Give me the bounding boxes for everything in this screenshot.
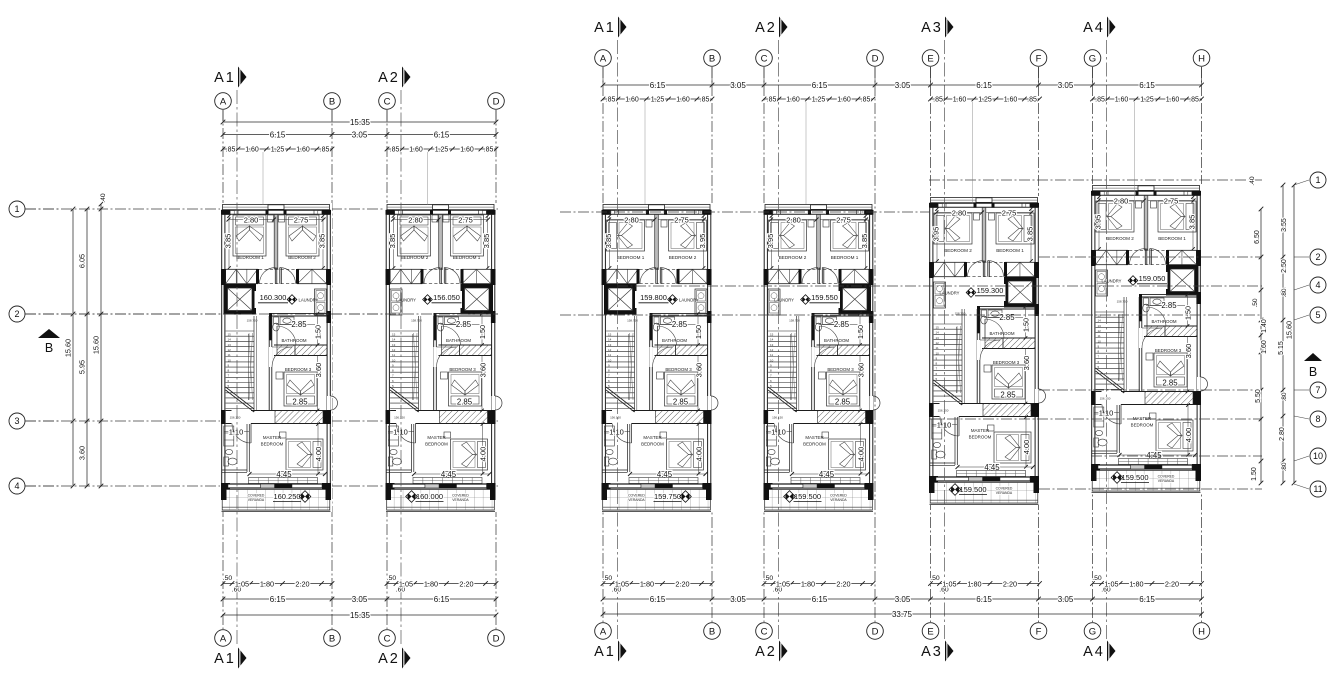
svg-text:BEDROOM: BEDROOM — [641, 442, 664, 447]
svg-text:MASTER: MASTER — [263, 435, 281, 440]
svg-text:4.00: 4.00 — [1184, 428, 1193, 443]
svg-text:4.00: 4.00 — [314, 447, 323, 462]
svg-text:10: 10 — [770, 358, 774, 362]
svg-text:2.20: 2.20 — [675, 579, 689, 588]
svg-text:.40: .40 — [1249, 176, 1256, 186]
svg-text:1.80: 1.80 — [640, 579, 654, 588]
svg-text:BEDROOM 3: BEDROOM 3 — [449, 367, 476, 372]
svg-text:4.00: 4.00 — [695, 447, 704, 462]
svg-text:6.15: 6.15 — [1139, 81, 1155, 90]
svg-text:1.60: 1.60 — [1166, 97, 1180, 104]
svg-text:C: C — [384, 633, 391, 644]
svg-text:A: A — [600, 53, 607, 64]
svg-text:3.05: 3.05 — [730, 81, 746, 90]
svg-text:159.500: 159.500 — [959, 485, 986, 494]
svg-text:3.95: 3.95 — [698, 234, 707, 249]
svg-text:.50: .50 — [387, 575, 397, 582]
svg-text:4.00: 4.00 — [1022, 440, 1031, 455]
svg-text:1.60: 1.60 — [786, 97, 800, 104]
svg-text:3.85: 3.85 — [388, 234, 397, 249]
svg-text:1.10: 1.10 — [393, 427, 408, 436]
svg-text:11: 11 — [228, 353, 231, 357]
svg-text:1.60: 1.60 — [625, 97, 639, 104]
svg-text:10: 10 — [608, 358, 612, 362]
svg-text:2.80: 2.80 — [624, 215, 639, 224]
svg-text:2.85: 2.85 — [1161, 301, 1177, 310]
svg-text:158.750: 158.750 — [411, 319, 422, 323]
svg-text:.85: .85 — [390, 147, 400, 154]
svg-text:2.75: 2.75 — [836, 215, 851, 224]
svg-text:1.25: 1.25 — [651, 97, 665, 104]
svg-text:1.80: 1.80 — [967, 579, 981, 588]
svg-text:E: E — [927, 53, 933, 64]
svg-text:1.50: 1.50 — [1184, 306, 1193, 320]
svg-text:BEDROOM 1: BEDROOM 1 — [831, 255, 859, 260]
svg-text:6.15: 6.15 — [812, 81, 828, 90]
svg-text:6.15: 6.15 — [650, 81, 666, 90]
svg-text:.50: .50 — [603, 575, 613, 582]
svg-text:7: 7 — [1315, 385, 1320, 395]
svg-text:A2: A2 — [378, 651, 400, 667]
svg-text:3: 3 — [14, 416, 19, 426]
svg-text:15: 15 — [1098, 314, 1102, 318]
svg-text:11: 11 — [392, 353, 395, 357]
svg-text:BATHROOM: BATHROOM — [446, 338, 471, 343]
svg-text:14: 14 — [936, 331, 940, 335]
svg-text:B: B — [45, 341, 53, 355]
svg-text:2.85: 2.85 — [1000, 391, 1016, 400]
svg-text:12: 12 — [936, 341, 940, 345]
svg-text:2.80: 2.80 — [244, 215, 259, 224]
svg-text:1.60: 1.60 — [409, 147, 423, 154]
svg-text:2.85: 2.85 — [835, 398, 851, 407]
svg-text:BEDROOM 1: BEDROOM 1 — [1158, 236, 1186, 241]
svg-text:.85: .85 — [1027, 97, 1037, 104]
svg-text:.50: .50 — [1092, 575, 1102, 582]
svg-text:3.60: 3.60 — [1022, 356, 1031, 371]
svg-text:6.50: 6.50 — [1254, 230, 1261, 244]
svg-text:14: 14 — [770, 338, 774, 342]
svg-text:14: 14 — [608, 338, 612, 342]
svg-text:.50: .50 — [930, 575, 940, 582]
svg-text:B: B — [1309, 365, 1317, 379]
svg-text:1.25: 1.25 — [812, 97, 826, 104]
svg-text:156.150: 156.150 — [394, 416, 405, 420]
svg-text:BEDROOM 1: BEDROOM 1 — [236, 255, 264, 260]
svg-text:BEDROOM 2: BEDROOM 2 — [669, 255, 697, 260]
svg-text:BATHROOM: BATHROOM — [989, 331, 1014, 336]
svg-text:156.050: 156.050 — [433, 293, 460, 302]
svg-text:158.750: 158.750 — [1117, 300, 1128, 304]
svg-text:2.85: 2.85 — [457, 398, 473, 407]
svg-text:.85: .85 — [1095, 97, 1105, 104]
svg-text:12: 12 — [608, 348, 612, 352]
svg-text:BEDROOM 2: BEDROOM 2 — [779, 255, 807, 260]
svg-text:2.80: 2.80 — [1279, 427, 1286, 441]
svg-text:D: D — [493, 96, 500, 107]
svg-text:1.10: 1.10 — [937, 420, 952, 429]
svg-text:11: 11 — [936, 346, 939, 350]
svg-text:.80: .80 — [1281, 392, 1288, 401]
svg-text:2.75: 2.75 — [458, 215, 473, 224]
svg-text:C: C — [384, 96, 391, 107]
svg-text:BEDROOM: BEDROOM — [1131, 423, 1154, 428]
svg-text:BEDROOM 2: BEDROOM 2 — [944, 248, 972, 253]
svg-text:160.000: 160.000 — [416, 492, 443, 501]
svg-text:.40: .40 — [100, 193, 107, 203]
svg-text:D: D — [872, 626, 879, 637]
svg-text:3.05: 3.05 — [895, 81, 911, 90]
svg-text:2.80: 2.80 — [408, 215, 423, 224]
svg-text:159.800: 159.800 — [640, 293, 667, 302]
svg-text:12: 12 — [1098, 329, 1102, 333]
svg-text:3.05: 3.05 — [352, 130, 368, 139]
svg-text:6.05: 6.05 — [78, 254, 87, 268]
svg-text:1.60: 1.60 — [296, 147, 310, 154]
svg-text:A2: A2 — [378, 70, 400, 86]
svg-text:A: A — [220, 633, 227, 644]
svg-text:BATHROOM: BATHROOM — [824, 338, 849, 343]
svg-text:.85: .85 — [484, 147, 494, 154]
svg-text:2.85: 2.85 — [672, 320, 688, 329]
svg-text:1.50: 1.50 — [1022, 318, 1031, 332]
svg-text:15.35: 15.35 — [350, 118, 371, 127]
svg-text:156.150: 156.150 — [1100, 397, 1111, 401]
svg-text:A4: A4 — [1083, 644, 1105, 660]
svg-text:2.80: 2.80 — [952, 208, 967, 217]
svg-text:2: 2 — [14, 309, 19, 319]
svg-text:COVERED: COVERED — [628, 494, 645, 498]
svg-text:MASTER: MASTER — [643, 435, 661, 440]
svg-text:4.00: 4.00 — [857, 447, 866, 462]
svg-text:6.15: 6.15 — [976, 81, 992, 90]
svg-text:BATHROOM: BATHROOM — [1151, 319, 1176, 324]
svg-text:3.85: 3.85 — [860, 234, 869, 249]
svg-text:2.75: 2.75 — [1002, 208, 1017, 217]
svg-text:15.60: 15.60 — [1285, 321, 1294, 339]
svg-text:BEDROOM: BEDROOM — [425, 442, 448, 447]
svg-text:.85: .85 — [226, 147, 236, 154]
svg-text:2.85: 2.85 — [673, 398, 689, 407]
svg-text:A3: A3 — [921, 20, 943, 36]
svg-text:.80: .80 — [1281, 288, 1288, 297]
svg-text:13: 13 — [608, 343, 612, 347]
svg-text:G: G — [1089, 53, 1096, 64]
svg-text:3.05: 3.05 — [352, 595, 368, 604]
svg-text:1.05: 1.05 — [235, 579, 249, 588]
svg-text:1.50: 1.50 — [314, 325, 323, 339]
svg-text:A2: A2 — [755, 644, 777, 660]
svg-text:4: 4 — [1315, 280, 1320, 290]
svg-text:3.60: 3.60 — [1184, 344, 1193, 359]
svg-text:.85: .85 — [933, 97, 943, 104]
svg-text:F: F — [1036, 626, 1042, 637]
svg-text:12: 12 — [770, 348, 774, 352]
svg-text:1.50: 1.50 — [1251, 467, 1258, 481]
svg-text:33.75: 33.75 — [892, 610, 913, 619]
svg-text:BEDROOM 3: BEDROOM 3 — [665, 367, 692, 372]
svg-text:159.500: 159.500 — [794, 492, 821, 501]
svg-text:1: 1 — [1315, 175, 1320, 185]
svg-text:A1: A1 — [594, 644, 616, 660]
svg-text:5.50: 5.50 — [1255, 389, 1262, 403]
svg-text:13: 13 — [936, 336, 940, 340]
svg-text:COVERED: COVERED — [248, 494, 265, 498]
svg-text:2.85: 2.85 — [834, 320, 850, 329]
svg-text:3.60: 3.60 — [479, 363, 488, 378]
svg-text:.85: .85 — [606, 97, 616, 104]
svg-text:156.150: 156.150 — [610, 416, 621, 420]
svg-text:1.05: 1.05 — [615, 579, 629, 588]
svg-text:3.60: 3.60 — [314, 363, 323, 378]
svg-text:G: G — [1089, 626, 1096, 637]
svg-text:6.15: 6.15 — [812, 595, 828, 604]
svg-text:2.20: 2.20 — [1165, 579, 1179, 588]
svg-text:BEDROOM 2: BEDROOM 2 — [288, 255, 316, 260]
svg-text:BATHROOM: BATHROOM — [662, 338, 687, 343]
svg-text:3.95: 3.95 — [1094, 215, 1103, 230]
svg-text:6.15: 6.15 — [1139, 595, 1155, 604]
svg-text:2.20: 2.20 — [1003, 579, 1017, 588]
svg-text:LAUNDRY: LAUNDRY — [299, 298, 319, 303]
svg-text:8: 8 — [1315, 414, 1320, 424]
svg-text:.85: .85 — [320, 147, 330, 154]
svg-text:15: 15 — [392, 333, 396, 337]
svg-text:159.550: 159.550 — [811, 293, 838, 302]
svg-text:4: 4 — [14, 481, 19, 491]
svg-text:1.60: 1.60 — [460, 147, 474, 154]
svg-text:3.85: 3.85 — [318, 234, 327, 249]
svg-text:LAUNDRY: LAUNDRY — [679, 298, 699, 303]
svg-text:2: 2 — [1315, 252, 1320, 262]
svg-text:A1: A1 — [214, 70, 236, 86]
svg-text:3.85: 3.85 — [482, 234, 491, 249]
svg-text:3.85: 3.85 — [1026, 227, 1035, 242]
svg-text:A: A — [220, 96, 227, 107]
svg-text:COVERED: COVERED — [452, 494, 469, 498]
svg-text:5: 5 — [1315, 310, 1320, 320]
svg-text:3.60: 3.60 — [78, 446, 87, 460]
svg-text:1.05: 1.05 — [776, 579, 790, 588]
svg-text:H: H — [1198, 626, 1205, 637]
svg-text:1.10: 1.10 — [229, 427, 244, 436]
svg-text:BEDROOM 1: BEDROOM 1 — [996, 248, 1024, 253]
svg-text:BEDROOM: BEDROOM — [803, 442, 826, 447]
svg-text:.85: .85 — [767, 97, 777, 104]
svg-text:1.10: 1.10 — [609, 427, 624, 436]
svg-text:COVERED: COVERED — [830, 494, 847, 498]
svg-text:2.50: 2.50 — [1281, 259, 1288, 273]
svg-text:15: 15 — [936, 326, 940, 330]
svg-text:BEDROOM 3: BEDROOM 3 — [993, 360, 1020, 365]
svg-text:LAUNDRY: LAUNDRY — [940, 291, 960, 296]
svg-text:3.60: 3.60 — [857, 363, 866, 378]
svg-text:10: 10 — [1313, 451, 1323, 461]
svg-text:1.60: 1.60 — [245, 147, 259, 154]
svg-text:BEDROOM 3: BEDROOM 3 — [1155, 348, 1182, 353]
svg-text:.50: .50 — [223, 575, 233, 582]
svg-text:2.85: 2.85 — [1162, 379, 1178, 388]
svg-text:1: 1 — [14, 204, 19, 214]
svg-text:1.80: 1.80 — [801, 579, 815, 588]
svg-text:2.75: 2.75 — [1164, 196, 1179, 205]
svg-text:12: 12 — [392, 348, 396, 352]
svg-text:3.60: 3.60 — [695, 363, 704, 378]
svg-text:1.50: 1.50 — [694, 325, 703, 339]
svg-text:.80: .80 — [1281, 462, 1288, 471]
svg-text:H: H — [1198, 53, 1205, 64]
svg-text:B: B — [709, 626, 715, 637]
svg-text:COVERED: COVERED — [996, 487, 1013, 491]
svg-text:.50: .50 — [1252, 298, 1259, 307]
svg-text:2.85: 2.85 — [999, 313, 1015, 322]
svg-text:156.150: 156.150 — [938, 409, 949, 413]
svg-text:14: 14 — [392, 338, 396, 342]
svg-text:D: D — [872, 53, 879, 64]
svg-text:6.15: 6.15 — [650, 595, 666, 604]
svg-text:160.300: 160.300 — [260, 293, 287, 302]
svg-text:.50: .50 — [764, 575, 774, 582]
svg-text:BEDROOM 3: BEDROOM 3 — [285, 367, 312, 372]
svg-text:A2: A2 — [755, 20, 777, 36]
svg-text:15.60: 15.60 — [64, 339, 73, 357]
svg-text:13: 13 — [770, 343, 774, 347]
svg-text:6.15: 6.15 — [270, 595, 286, 604]
svg-text:1.50: 1.50 — [856, 325, 865, 339]
svg-text:1.80: 1.80 — [1129, 579, 1143, 588]
svg-text:158.750: 158.750 — [789, 319, 800, 323]
svg-text:13: 13 — [228, 343, 232, 347]
svg-text:2.75: 2.75 — [674, 215, 689, 224]
svg-text:15: 15 — [228, 333, 232, 337]
svg-text:156.150: 156.150 — [230, 416, 241, 420]
svg-text:A3: A3 — [921, 644, 943, 660]
svg-text:3.05: 3.05 — [1058, 81, 1074, 90]
svg-text:2.20: 2.20 — [836, 579, 850, 588]
svg-text:3.05: 3.05 — [730, 595, 746, 604]
svg-text:159.750: 159.750 — [654, 492, 681, 501]
svg-text:10: 10 — [1098, 339, 1102, 343]
svg-text:1.60: 1.60 — [1004, 97, 1018, 104]
svg-text:158.750: 158.750 — [247, 319, 258, 323]
svg-text:159.050: 159.050 — [1139, 274, 1166, 283]
svg-text:1.40: 1.40 — [1261, 319, 1268, 333]
svg-text:VERANDA: VERANDA — [1158, 479, 1175, 483]
svg-text:MASTER: MASTER — [805, 435, 823, 440]
svg-text:1.25: 1.25 — [435, 147, 449, 154]
svg-text:3.55: 3.55 — [1281, 218, 1288, 232]
svg-text:BEDROOM 1: BEDROOM 1 — [617, 255, 645, 260]
svg-text:6.15: 6.15 — [270, 130, 286, 139]
svg-text:BEDROOM: BEDROOM — [261, 442, 284, 447]
svg-text:.85: .85 — [1189, 97, 1199, 104]
svg-text:11: 11 — [770, 353, 773, 357]
svg-text:VERANDA: VERANDA — [628, 498, 645, 502]
svg-text:2.85: 2.85 — [291, 320, 307, 329]
svg-text:1.60: 1.60 — [1261, 340, 1268, 354]
svg-text:1.05: 1.05 — [399, 579, 413, 588]
svg-text:15.60: 15.60 — [92, 336, 101, 354]
svg-text:15.35: 15.35 — [350, 611, 371, 620]
svg-text:1.25: 1.25 — [978, 97, 992, 104]
svg-text:BEDROOM 2: BEDROOM 2 — [401, 255, 429, 260]
svg-text:1.60: 1.60 — [1115, 97, 1129, 104]
svg-text:C: C — [761, 626, 768, 637]
svg-text:156.150: 156.150 — [772, 416, 783, 420]
svg-text:1.05: 1.05 — [942, 579, 956, 588]
svg-text:15: 15 — [608, 333, 612, 337]
svg-text:B: B — [329, 633, 335, 644]
svg-text:BATHROOM: BATHROOM — [281, 338, 306, 343]
svg-text:VERANDA: VERANDA — [452, 498, 469, 502]
svg-text:LAUNDRY: LAUNDRY — [774, 298, 794, 303]
svg-text:3.05: 3.05 — [895, 595, 911, 604]
svg-text:10: 10 — [392, 358, 396, 362]
svg-text:BEDROOM 1: BEDROOM 1 — [453, 255, 481, 260]
svg-text:D: D — [493, 633, 500, 644]
svg-text:5.15: 5.15 — [1278, 341, 1285, 355]
svg-text:1.80: 1.80 — [424, 579, 438, 588]
svg-text:A: A — [600, 626, 607, 637]
svg-text:VERANDA: VERANDA — [248, 498, 265, 502]
svg-text:MASTER: MASTER — [1133, 416, 1151, 421]
svg-text:6.15: 6.15 — [434, 130, 450, 139]
svg-text:3.95: 3.95 — [766, 234, 775, 249]
svg-text:2.20: 2.20 — [295, 579, 309, 588]
svg-text:3.85: 3.85 — [604, 234, 613, 249]
svg-text:15: 15 — [770, 333, 774, 337]
svg-text:3.85: 3.85 — [224, 234, 233, 249]
svg-text:3.05: 3.05 — [1058, 595, 1074, 604]
svg-text:159.500: 159.500 — [1121, 473, 1148, 482]
svg-text:1.25: 1.25 — [1140, 97, 1154, 104]
svg-text:11: 11 — [1313, 484, 1322, 494]
svg-text:1.25: 1.25 — [271, 147, 285, 154]
svg-text:VERANDA: VERANDA — [996, 491, 1013, 495]
svg-text:10: 10 — [228, 358, 232, 362]
svg-text:2.75: 2.75 — [294, 215, 309, 224]
svg-text:E: E — [927, 626, 933, 637]
svg-text:12: 12 — [228, 348, 232, 352]
svg-text:2.20: 2.20 — [459, 579, 473, 588]
svg-text:13: 13 — [392, 343, 396, 347]
svg-text:1.10: 1.10 — [1099, 408, 1114, 417]
svg-text:11: 11 — [608, 353, 611, 357]
svg-text:MASTER: MASTER — [427, 435, 445, 440]
svg-text:A1: A1 — [214, 651, 236, 667]
svg-text:1.60: 1.60 — [676, 97, 690, 104]
svg-text:BEDROOM: BEDROOM — [969, 435, 992, 440]
svg-text:B: B — [709, 53, 715, 64]
svg-text:B: B — [329, 96, 335, 107]
svg-text:1.60: 1.60 — [953, 97, 967, 104]
svg-text:14: 14 — [1098, 319, 1102, 323]
svg-text:LAUNDRY: LAUNDRY — [396, 298, 416, 303]
svg-text:2.80: 2.80 — [786, 215, 801, 224]
svg-text:MASTER: MASTER — [971, 428, 989, 433]
svg-text:A4: A4 — [1083, 20, 1105, 36]
svg-text:11: 11 — [1098, 334, 1101, 338]
svg-text:6.15: 6.15 — [976, 595, 992, 604]
svg-text:BEDROOM 2: BEDROOM 2 — [1106, 236, 1134, 241]
svg-text:2.80: 2.80 — [1114, 196, 1129, 205]
svg-text:2.85: 2.85 — [292, 398, 308, 407]
svg-text:1.05: 1.05 — [1104, 579, 1118, 588]
svg-text:5.95: 5.95 — [78, 360, 87, 374]
svg-text:COVERED: COVERED — [1158, 475, 1175, 479]
svg-text:F: F — [1036, 53, 1042, 64]
svg-text:1.50: 1.50 — [478, 325, 487, 339]
